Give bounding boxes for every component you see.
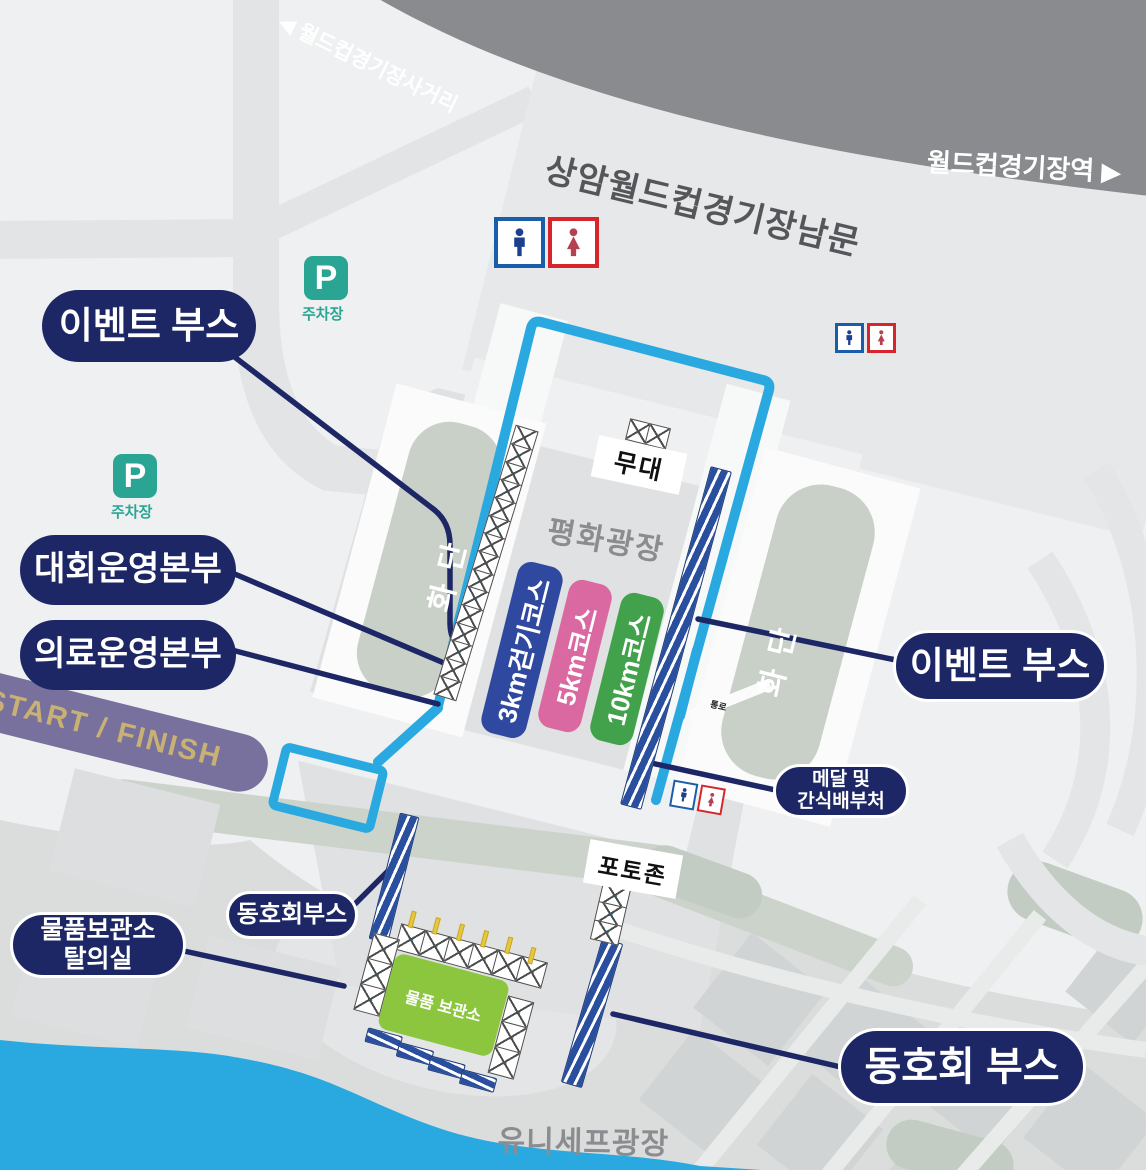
flag-pole [432,917,441,935]
callout-race-hq: 대회운영본부 [20,535,236,605]
parking-icon: P [113,454,157,498]
right-arrow-icon: ▶ [1101,156,1123,187]
parking-symbol: P [124,457,147,496]
flag-pole [504,936,513,954]
storage-line1: 물품보관소 [40,916,155,945]
road-horizontal-left [0,238,250,240]
restroom-male-icon [494,217,545,268]
storage-tent-label: 물품 보관소 [403,983,485,1026]
parking-symbol: P [315,259,338,298]
callout-event-booth-right: 이벤트 부스 [893,630,1107,702]
event-map: ◀ 월드컵경기장사거리 월드컵경기장역 ▶ 상암월드컵경기장남문 평화광장 유니… [0,0,1146,1170]
parking-label: 주차장 [111,501,152,522]
restroom-female-icon [867,323,896,353]
flag-pole [456,924,465,942]
restroom-male-icon [835,323,864,353]
callout-club-booth-small: 동호회부스 [226,891,358,939]
restroom-icons [835,323,896,353]
medal-snack-line1: 메달 및 [797,769,884,791]
parking-label: 주차장 [302,303,343,324]
callout-club-booth-large: 동호회 부스 [838,1028,1086,1106]
unicef-plaza-title: 유니세프광장 [497,1116,669,1163]
truss-box [488,1046,521,1080]
road-diagonal-upper [245,100,535,238]
flag-pole [408,911,417,929]
medal-snack-line2: 간식배부처 [797,791,884,813]
callout-storage-changing: 물품보관소 탈의실 [10,912,186,978]
callout-medal-snack: 메달 및 간식배부처 [773,764,909,818]
flag-pole [480,930,489,948]
restroom-icons [494,217,599,268]
callout-event-booth-left: 이벤트 부스 [42,290,256,362]
restroom-male-icon [669,780,698,811]
restroom-female-icon [697,784,726,815]
restroom-female-icon [548,217,599,268]
parking-icon: P [304,256,348,300]
callout-medical-hq: 의료운영본부 [20,620,236,690]
storage-line2: 탈의실 [40,945,155,974]
